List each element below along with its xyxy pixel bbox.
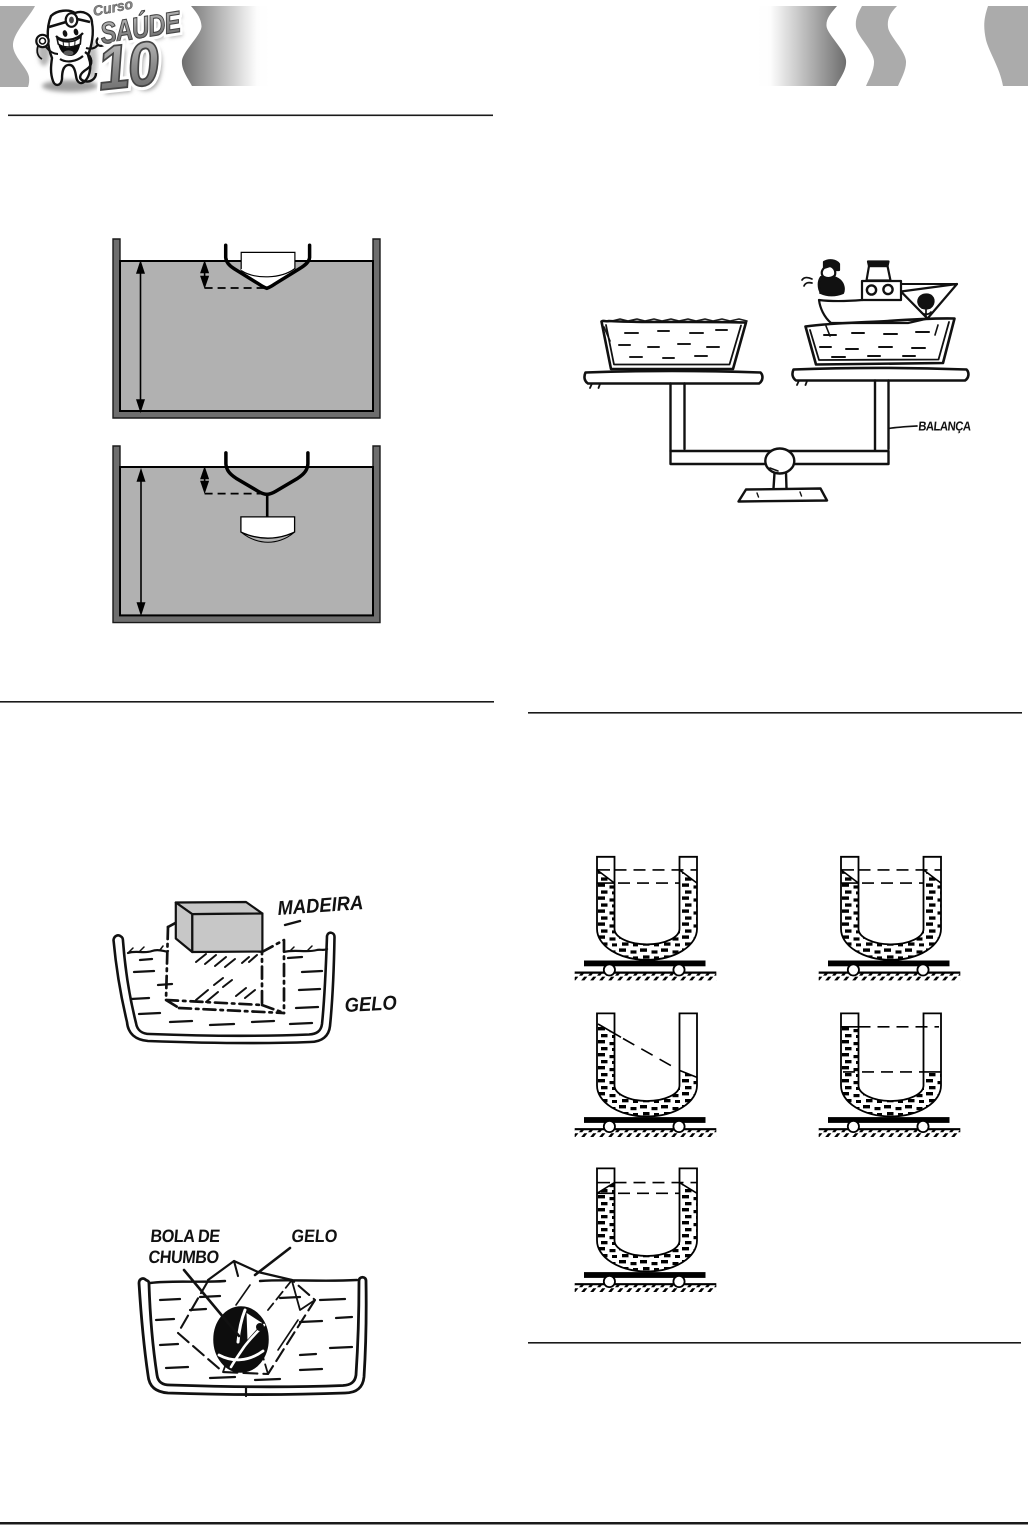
svg-text:GELO: GELO — [291, 1225, 339, 1246]
svg-text:GELO: GELO — [344, 993, 397, 1018]
svg-text:BOLA DE: BOLA DE — [150, 1225, 221, 1246]
svg-text:10: 10 — [94, 28, 162, 104]
svg-text:CHUMBO: CHUMBO — [148, 1246, 220, 1267]
svg-text:BALANÇA: BALANÇA — [918, 419, 972, 434]
